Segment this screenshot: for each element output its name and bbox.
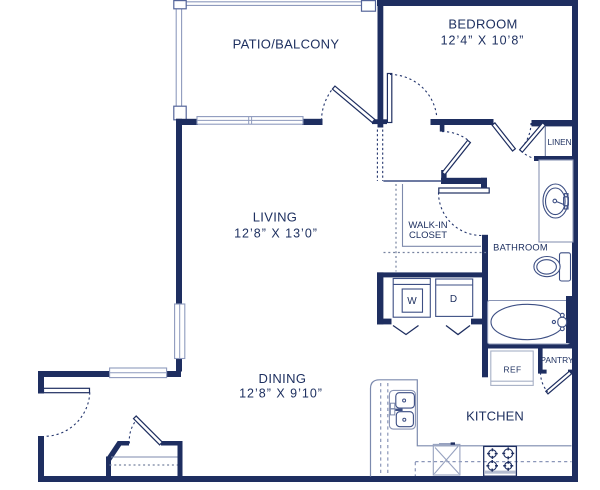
svg-text:W: W	[407, 296, 417, 307]
svg-text:BATHROOM: BATHROOM	[493, 243, 548, 253]
svg-text:PANTRY: PANTRY	[540, 355, 574, 365]
svg-text:LINEN: LINEN	[547, 138, 571, 147]
svg-text:KITCHEN: KITCHEN	[466, 409, 524, 424]
svg-text:CLOSET: CLOSET	[409, 230, 447, 241]
svg-text:DINING: DINING	[259, 371, 307, 386]
svg-text:12’8” X 13’0”: 12’8” X 13’0”	[234, 226, 318, 240]
svg-text:LIVING: LIVING	[253, 210, 297, 225]
svg-text:PATIO/BALCONY: PATIO/BALCONY	[233, 37, 340, 52]
svg-text:12’4” X 10’8”: 12’4” X 10’8”	[441, 34, 525, 48]
svg-text:BEDROOM: BEDROOM	[448, 17, 517, 32]
svg-text:REF: REF	[504, 365, 522, 375]
svg-text:D: D	[450, 294, 457, 305]
svg-text:12’8” X 9’10”: 12’8” X 9’10”	[239, 386, 323, 400]
